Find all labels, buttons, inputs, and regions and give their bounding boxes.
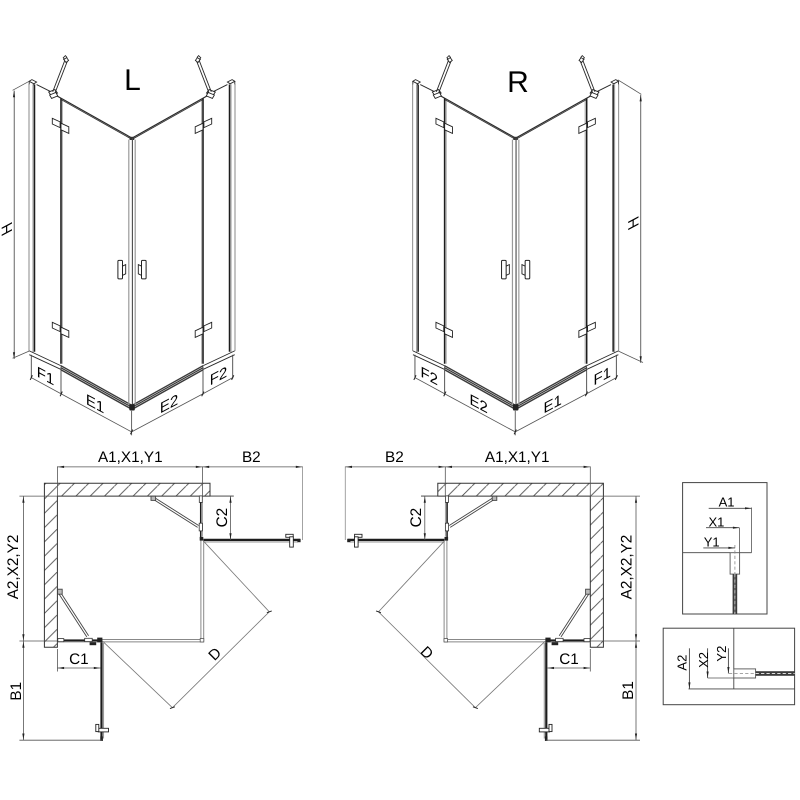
svg-text:Y1: Y1 — [704, 535, 720, 550]
svg-text:C1: C1 — [559, 651, 579, 668]
svg-text:A2,X2,Y2: A2,X2,Y2 — [619, 535, 636, 600]
svg-text:B2: B2 — [385, 449, 404, 466]
svg-text:Y2: Y2 — [714, 646, 729, 662]
svg-text:L: L — [124, 64, 141, 97]
svg-text:X2: X2 — [696, 652, 711, 668]
svg-text:B1: B1 — [620, 681, 637, 700]
svg-text:A1,X1,Y1: A1,X1,Y1 — [485, 449, 550, 466]
svg-text:A2,X2,Y2: A2,X2,Y2 — [5, 535, 22, 600]
svg-text:A2: A2 — [675, 655, 690, 671]
svg-text:C2: C2 — [408, 508, 425, 528]
svg-text:B2: B2 — [242, 449, 261, 466]
svg-text:C2: C2 — [214, 508, 231, 528]
svg-text:B1: B1 — [8, 682, 25, 701]
svg-text:C1: C1 — [69, 651, 89, 668]
svg-text:R: R — [507, 66, 529, 99]
svg-text:A1: A1 — [719, 494, 735, 509]
svg-text:A1,X1,Y1: A1,X1,Y1 — [98, 449, 163, 466]
svg-text:X1: X1 — [708, 515, 724, 530]
